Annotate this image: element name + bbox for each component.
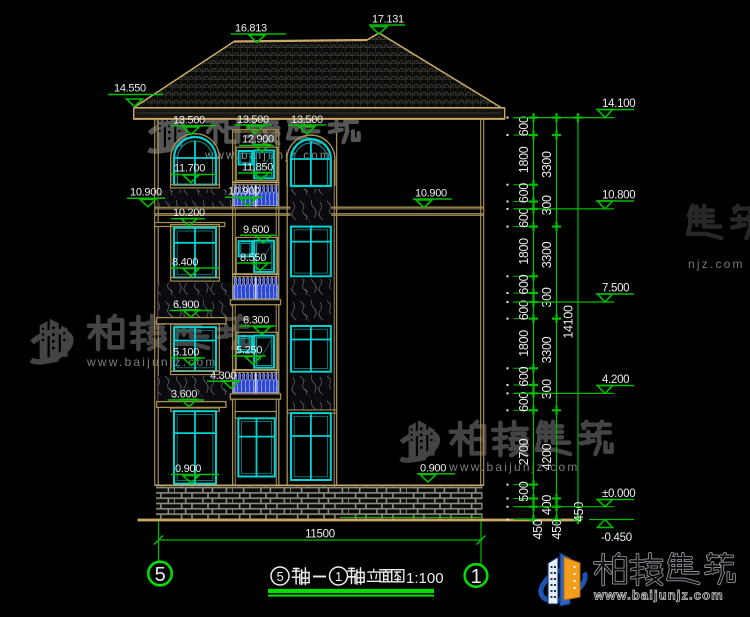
svg-text:5: 5 bbox=[277, 569, 284, 584]
svg-text:11.700: 11.700 bbox=[174, 163, 205, 175]
svg-text:www.baijunjz.com: www.baijunjz.com bbox=[448, 460, 580, 474]
svg-text:1:100: 1:100 bbox=[406, 570, 444, 587]
svg-text:-0.450: -0.450 bbox=[601, 532, 632, 544]
svg-text:www.baijunjz.com: www.baijunjz.com bbox=[593, 588, 724, 603]
svg-text:10.200: 10.200 bbox=[173, 207, 205, 219]
svg-text:5.100: 5.100 bbox=[173, 347, 199, 359]
svg-text:16.813: 16.813 bbox=[235, 23, 267, 35]
svg-text:450: 450 bbox=[550, 519, 564, 539]
svg-text:3300: 3300 bbox=[540, 241, 554, 268]
svg-text:5.250: 5.250 bbox=[236, 345, 262, 357]
svg-text:450: 450 bbox=[572, 502, 586, 522]
svg-text:6.300: 6.300 bbox=[243, 315, 269, 327]
svg-text:0.900: 0.900 bbox=[420, 463, 446, 475]
svg-text:5: 5 bbox=[155, 564, 166, 586]
svg-text:13.500: 13.500 bbox=[173, 115, 205, 127]
svg-text:11500: 11500 bbox=[305, 528, 335, 540]
svg-text:17.131: 17.131 bbox=[372, 14, 404, 26]
svg-text:300: 300 bbox=[540, 287, 554, 307]
svg-text:9.600: 9.600 bbox=[243, 224, 269, 236]
svg-text:3300: 3300 bbox=[540, 151, 554, 178]
svg-text:600: 600 bbox=[517, 207, 531, 227]
svg-text:8.400: 8.400 bbox=[172, 257, 198, 269]
svg-text:300: 300 bbox=[540, 195, 554, 215]
svg-text:1: 1 bbox=[335, 569, 342, 584]
svg-text:10.800: 10.800 bbox=[602, 190, 635, 202]
svg-text:400: 400 bbox=[540, 495, 554, 515]
svg-text:1800: 1800 bbox=[517, 238, 531, 265]
svg-text:10.900: 10.900 bbox=[415, 188, 447, 200]
svg-text:500: 500 bbox=[517, 481, 531, 501]
svg-text:10.900: 10.900 bbox=[130, 187, 162, 199]
svg-text:2700: 2700 bbox=[517, 438, 531, 465]
svg-text:450: 450 bbox=[531, 519, 545, 539]
svg-text:600: 600 bbox=[517, 300, 531, 320]
svg-text:600: 600 bbox=[517, 392, 531, 412]
svg-text:1800: 1800 bbox=[517, 146, 531, 173]
svg-text:njz.com: njz.com bbox=[688, 257, 745, 271]
svg-text:1800: 1800 bbox=[517, 330, 531, 357]
svg-text:4.200: 4.200 bbox=[602, 374, 629, 386]
svg-text:600: 600 bbox=[517, 366, 531, 386]
svg-text:13.500: 13.500 bbox=[237, 114, 269, 126]
svg-text:4200: 4200 bbox=[540, 443, 554, 470]
svg-text:14100: 14100 bbox=[562, 305, 576, 339]
svg-text:600: 600 bbox=[517, 183, 531, 203]
svg-text:600: 600 bbox=[517, 116, 531, 136]
svg-text:±0.000: ±0.000 bbox=[602, 488, 635, 500]
svg-text:7.500: 7.500 bbox=[602, 283, 629, 295]
svg-text:0.900: 0.900 bbox=[175, 463, 201, 475]
svg-text:13.500: 13.500 bbox=[291, 114, 323, 126]
svg-text:10.900: 10.900 bbox=[228, 186, 260, 198]
svg-text:14.100: 14.100 bbox=[602, 98, 635, 110]
svg-text:14.550: 14.550 bbox=[114, 83, 146, 95]
svg-text:1: 1 bbox=[471, 566, 482, 588]
svg-text:3300: 3300 bbox=[540, 336, 554, 363]
svg-text:600: 600 bbox=[517, 274, 531, 294]
svg-text:300: 300 bbox=[540, 379, 554, 399]
